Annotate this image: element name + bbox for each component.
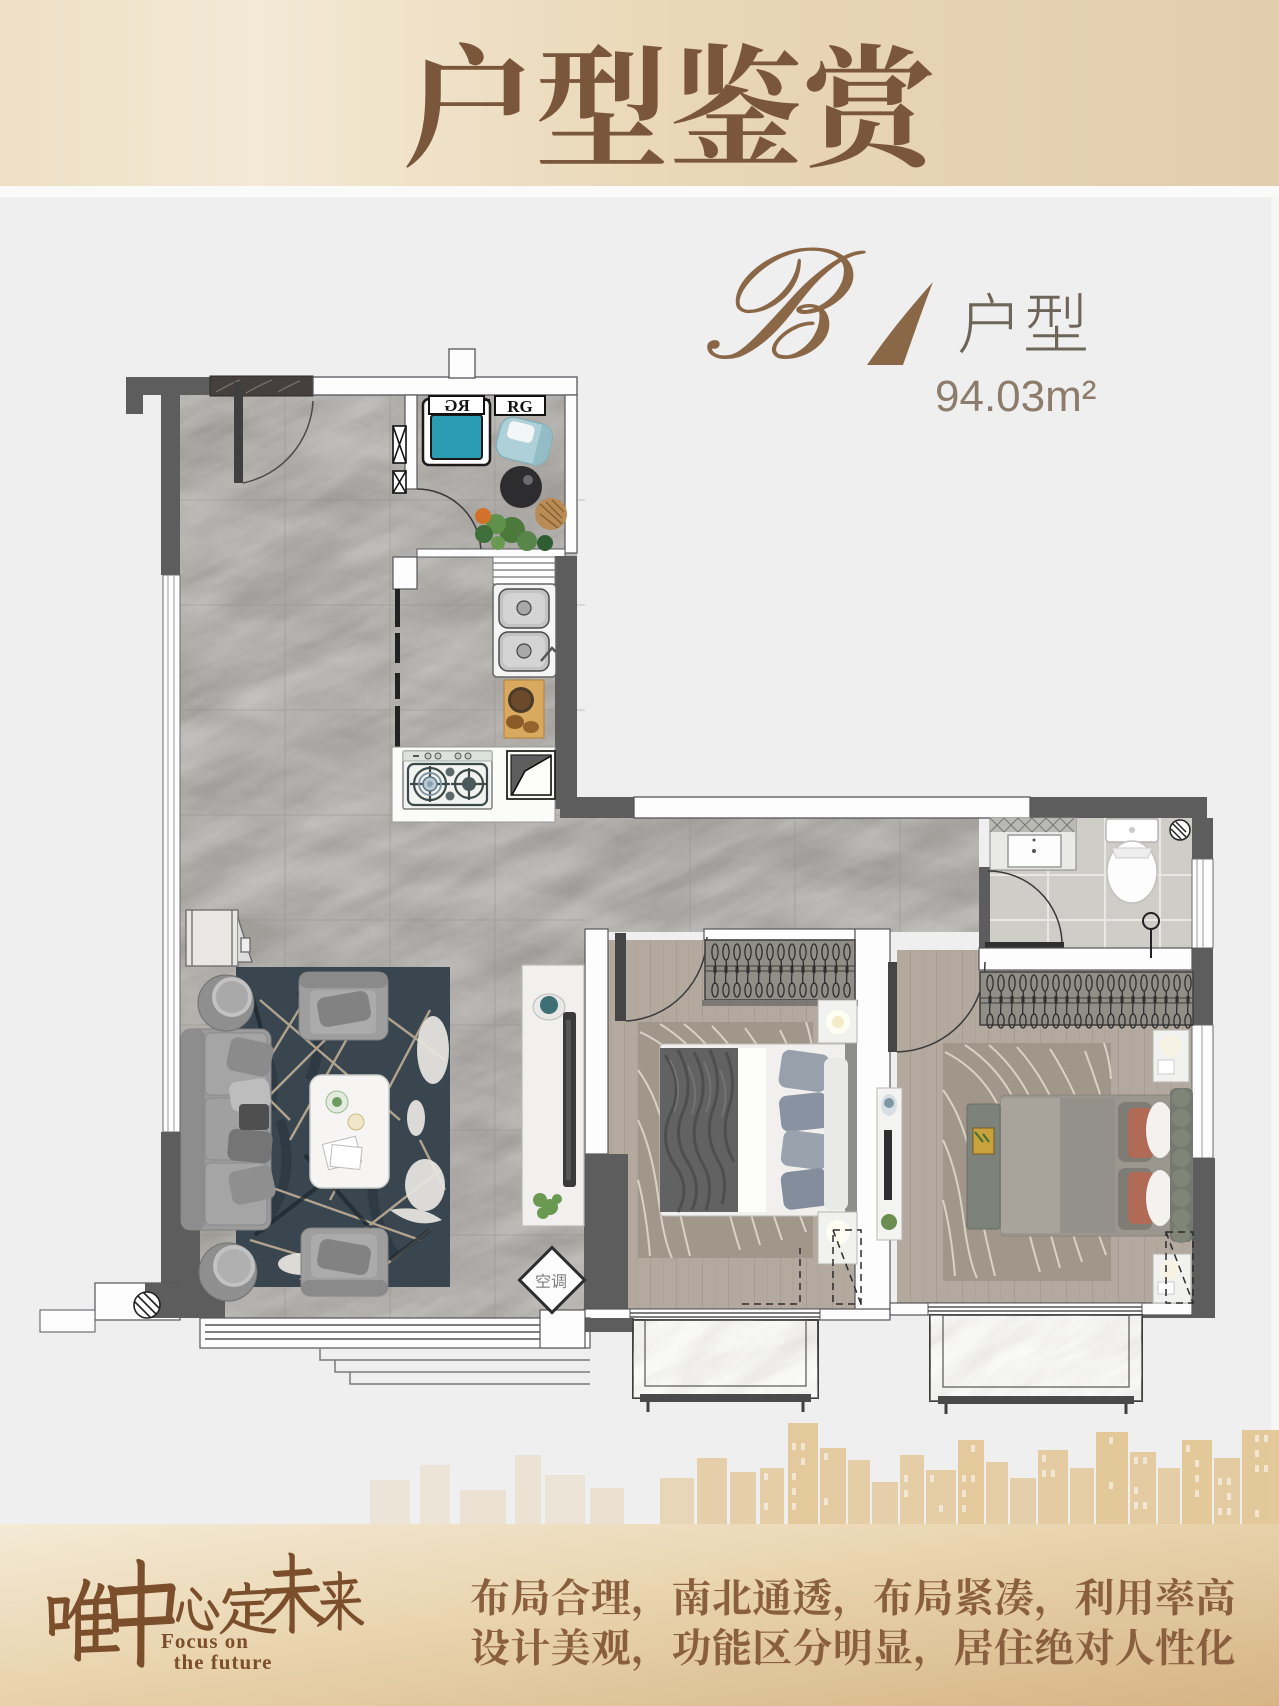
svg-text:RG: RG [444,396,470,415]
svg-text:RG: RG [507,397,533,416]
svg-text:the future: the future [174,1650,273,1674]
svg-text:94.03m²: 94.03m² [935,372,1096,421]
